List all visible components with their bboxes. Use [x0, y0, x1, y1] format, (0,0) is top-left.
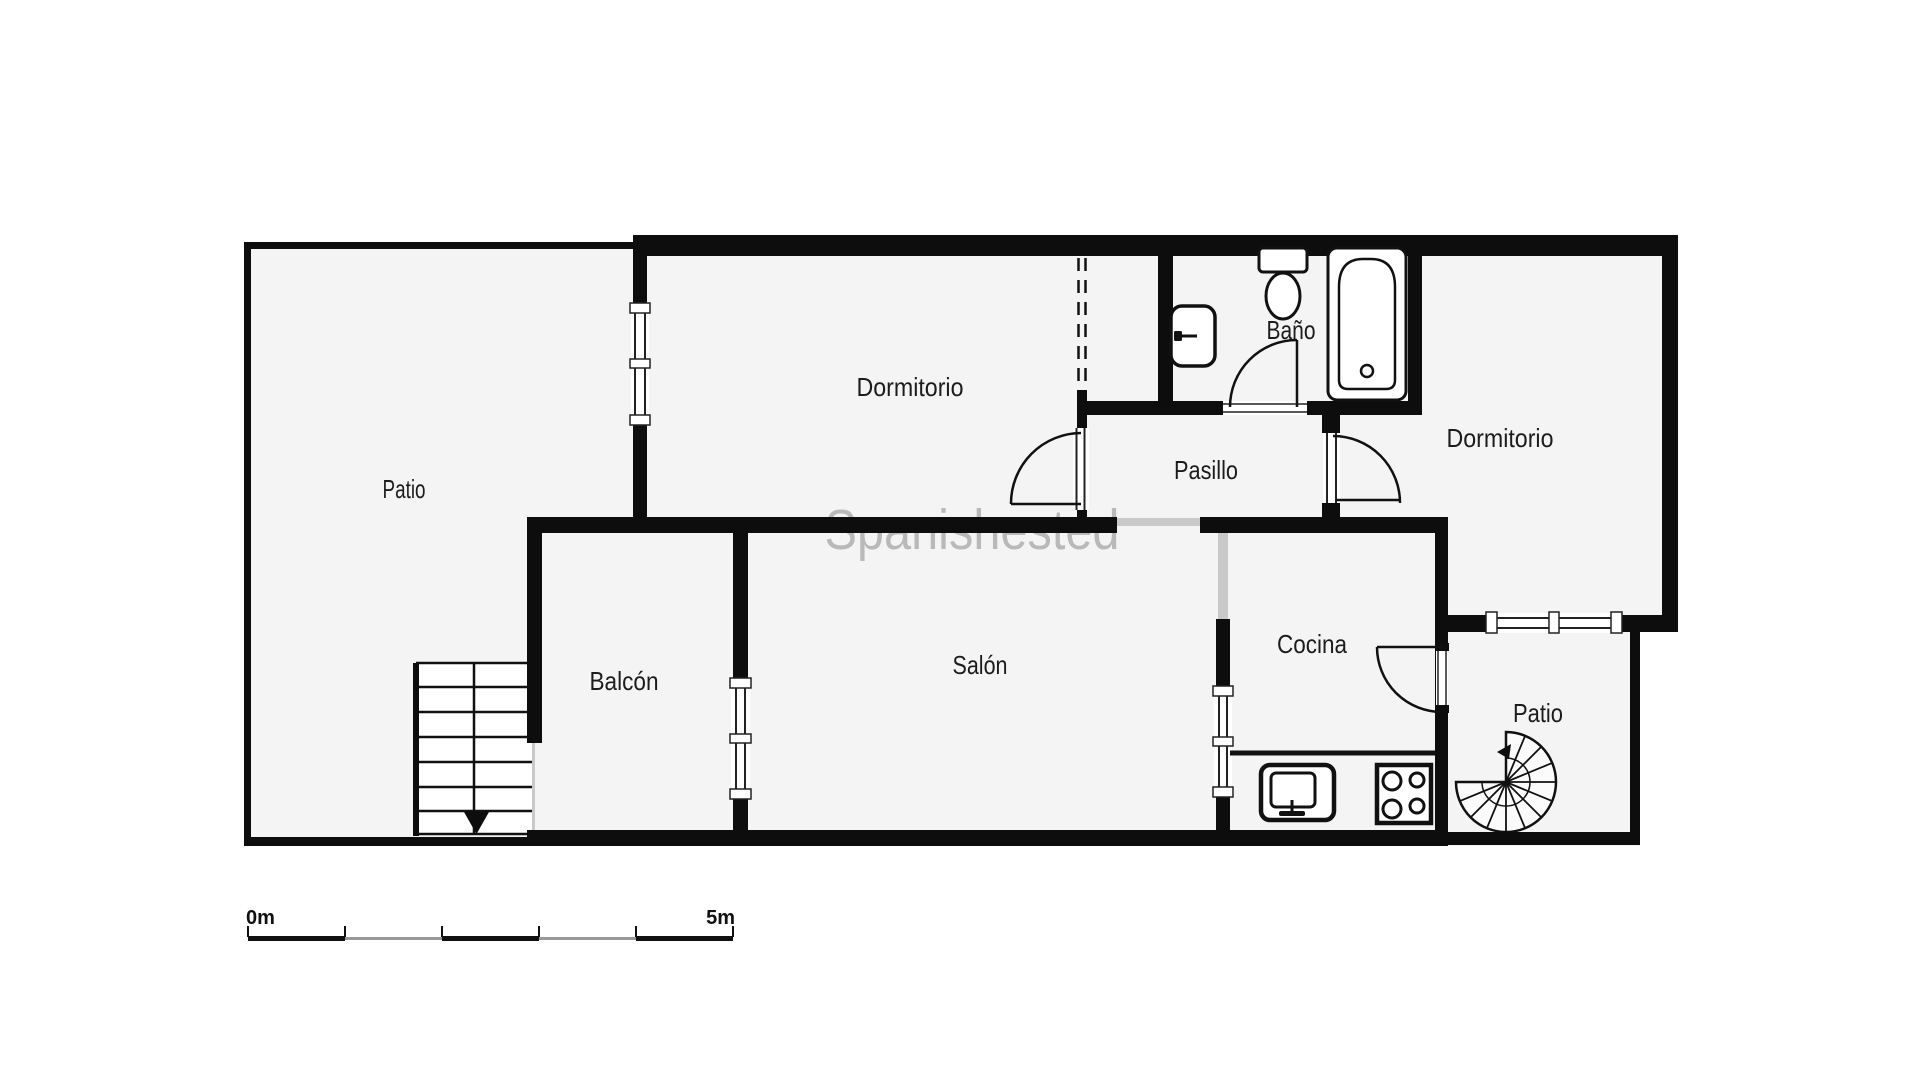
window-sill — [630, 359, 650, 368]
burner — [1410, 773, 1424, 787]
window-sill — [630, 415, 650, 425]
window-sill — [730, 734, 751, 743]
wall-segment — [527, 830, 1448, 846]
wall-segment — [1630, 632, 1640, 845]
window-sill — [730, 678, 751, 688]
room-label-patio-right: Patio — [1513, 698, 1563, 728]
wall-segment — [1322, 415, 1340, 433]
scale-tick — [538, 926, 540, 937]
wall-segment — [527, 517, 542, 743]
straight-staircase — [413, 662, 532, 836]
wall-segment — [633, 235, 1678, 256]
toilet-bowl — [1266, 273, 1300, 319]
stove — [1377, 765, 1431, 823]
threshold-dormitorio-top — [1073, 428, 1089, 510]
window-sill — [1213, 787, 1233, 797]
room-label-dormitorio-top: Dormitorio — [857, 372, 964, 402]
scale-tick — [732, 926, 734, 937]
wall-segment — [733, 517, 748, 680]
window-sill — [630, 303, 650, 313]
wall-segment — [1077, 510, 1087, 520]
floorplan-canvas: Spanishested — [0, 0, 1920, 1080]
wall-segment — [1216, 619, 1230, 688]
window-sill — [1213, 737, 1233, 746]
scale-tick — [344, 926, 346, 937]
scale-segment-dark — [248, 936, 345, 941]
scale-segment-dark — [636, 936, 733, 941]
room-label-patio-left: Patio — [383, 474, 426, 504]
threshold-band — [1073, 428, 1089, 510]
toilet-tank — [1259, 248, 1307, 272]
wall-segment — [1408, 235, 1422, 415]
wall-segment — [1216, 797, 1230, 830]
scale-tick — [635, 926, 637, 937]
sink-faucet-base — [1174, 331, 1182, 341]
room-label-bano: Baño — [1267, 315, 1316, 345]
opening-salon-cocina — [1218, 533, 1228, 619]
floorplan-page: Spanishested — [0, 0, 1920, 1080]
scale-start-label: 0m — [246, 907, 275, 929]
burner — [1410, 799, 1424, 813]
scale-end-label: 5m — [706, 907, 735, 929]
scale-segment-light — [345, 937, 442, 940]
burner — [1383, 772, 1401, 790]
window-patio-dormitorio — [630, 303, 650, 425]
burner — [1383, 800, 1401, 818]
room-label-pasillo: Pasillo — [1174, 455, 1238, 485]
scale-segment-light — [539, 937, 636, 940]
wall-segment — [733, 797, 748, 846]
window-sill — [1486, 612, 1497, 633]
threshold-band — [1323, 433, 1340, 503]
window-sill — [1549, 612, 1559, 633]
wall-segment — [244, 242, 640, 249]
wall-segment — [244, 837, 536, 846]
wall-segment — [244, 242, 251, 846]
threshold-cocina-patio — [1435, 643, 1449, 713]
wall-segment — [1083, 401, 1223, 415]
window-dormitorio-patio — [1486, 612, 1622, 633]
wall-segment — [527, 517, 1117, 533]
window-salon-cocina — [1213, 686, 1233, 797]
window-sill — [1213, 686, 1233, 696]
stair-left-rail — [413, 663, 419, 836]
bathroom-sink — [1171, 306, 1215, 366]
wall-segment — [1435, 832, 1640, 845]
wall-segment — [1662, 235, 1678, 632]
wall-segment — [633, 249, 647, 306]
scale-segments — [248, 936, 733, 941]
room-label-balcon: Balcón — [590, 666, 659, 696]
wall-segment — [1448, 615, 1490, 632]
window-sill — [1611, 612, 1622, 633]
bathtub — [1328, 248, 1406, 400]
bathtub-drain — [1361, 365, 1373, 377]
scale-ticks — [247, 926, 734, 937]
wall-segment — [1077, 390, 1087, 428]
threshold-bano — [1223, 401, 1307, 415]
scale-bar: 0m 5m — [246, 907, 735, 941]
threshold-dormitorio-right — [1323, 433, 1340, 503]
scale-tick — [441, 926, 443, 937]
wall-segment — [1200, 517, 1448, 533]
room-label-dormitorio-right: Dormitorio — [1447, 423, 1554, 453]
window-sill — [730, 789, 751, 799]
window-balcon-salon — [730, 678, 751, 799]
wall-segment — [633, 422, 647, 533]
scale-tick — [247, 926, 249, 937]
kitchen-faucet-bar — [1279, 811, 1305, 816]
kitchen-sink — [1261, 765, 1334, 820]
opening-pasillo-salon — [1117, 518, 1200, 526]
room-label-cocina: Cocina — [1277, 629, 1347, 659]
room-label-salon: Salón — [953, 650, 1008, 680]
threshold-band — [1223, 401, 1307, 415]
scale-segment-dark — [442, 936, 539, 941]
wall-segment — [1307, 401, 1422, 415]
wall-segment — [1322, 503, 1340, 519]
